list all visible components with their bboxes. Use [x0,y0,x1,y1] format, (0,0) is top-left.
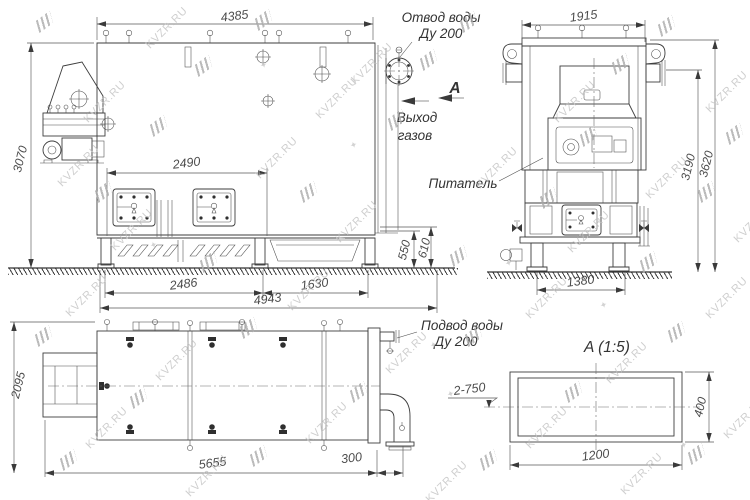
top-bolts [103,30,351,43]
dim-hatch-span: 2490 [171,154,201,171]
feeder-side [548,58,641,170]
label-water-outlet: Отвод воды [402,10,481,25]
crosshair-marks [100,49,331,132]
dim-base-right: 1630 [300,275,329,292]
plan-face-bolts [99,337,287,434]
detail-note: 2-750 [452,380,486,398]
plan-top-bolts [104,319,342,450]
section-marker-a: A [448,80,460,97]
dim-detail-height: 400 [691,395,710,418]
ash-grates [118,240,360,262]
plan-dimensions: 2095 5655 300 [8,322,403,477]
dim-right-inner: 550 [395,238,414,261]
section-view-arrow [438,94,452,102]
dim-height-outer: 3620 [696,149,716,179]
side-dimensions: 1915 3190 3620 1380 [522,7,719,295]
dim-plan-length: 5655 [198,454,227,471]
drawing-canvas: 4385 3070 2490 2486 1630 4943 550 610 От… [0,0,750,500]
water-outlet-flange [384,47,414,86]
detail-view-a: A (1:5) 1200 400 2-750 [448,339,714,470]
dim-base-total: 4943 [253,290,282,307]
pipe-elbow [380,394,414,450]
boiler-technical-drawing: 4385 3070 2490 2486 1630 4943 550 610 От… [0,0,750,500]
dim-detail-width: 1200 [581,446,610,463]
valve-symbols [512,221,649,232]
feeder-front [40,62,105,163]
label-gas-outlet-1: Выход [397,110,438,125]
side-top-bolts [535,25,629,38]
dim-height-inner: 3190 [678,152,698,182]
dim-pipe-offset: 300 [340,450,362,466]
ground-hatch-front [8,268,458,275]
label-water-outlet-size: Ду 200 [418,26,463,41]
side-view: 1915 3190 3620 1380 Питатель [429,7,719,295]
gas-flow-arrow [401,97,415,105]
dim-side-width: 1915 [569,7,598,24]
dim-overall-width: 4385 [220,7,249,24]
label-feeder: Питатель [429,176,498,191]
ground-hatch-side [487,272,672,279]
water-inlet-stub [380,330,399,354]
dim-right-outer: 610 [415,236,434,259]
label-water-inlet: Подвод воды [421,318,503,333]
label-gas-outlet-2: газов [398,128,432,143]
label-water-inlet-size: Ду 200 [433,334,478,349]
dim-base-left: 2486 [168,275,198,292]
dim-plan-depth: 2095 [8,370,28,401]
plan-view: 2095 5655 300 Подвод воды Ду 200 [8,318,503,477]
dim-overall-height: 3070 [10,144,30,174]
hatch-door-right [193,189,235,226]
hatch-door-left [113,189,155,226]
legs [98,238,378,268]
detail-title: A (1:5) [583,339,630,356]
feeder-plan [43,353,97,417]
side-hatch-door [562,205,601,235]
detail-dimensions: 1200 400 [510,372,714,470]
